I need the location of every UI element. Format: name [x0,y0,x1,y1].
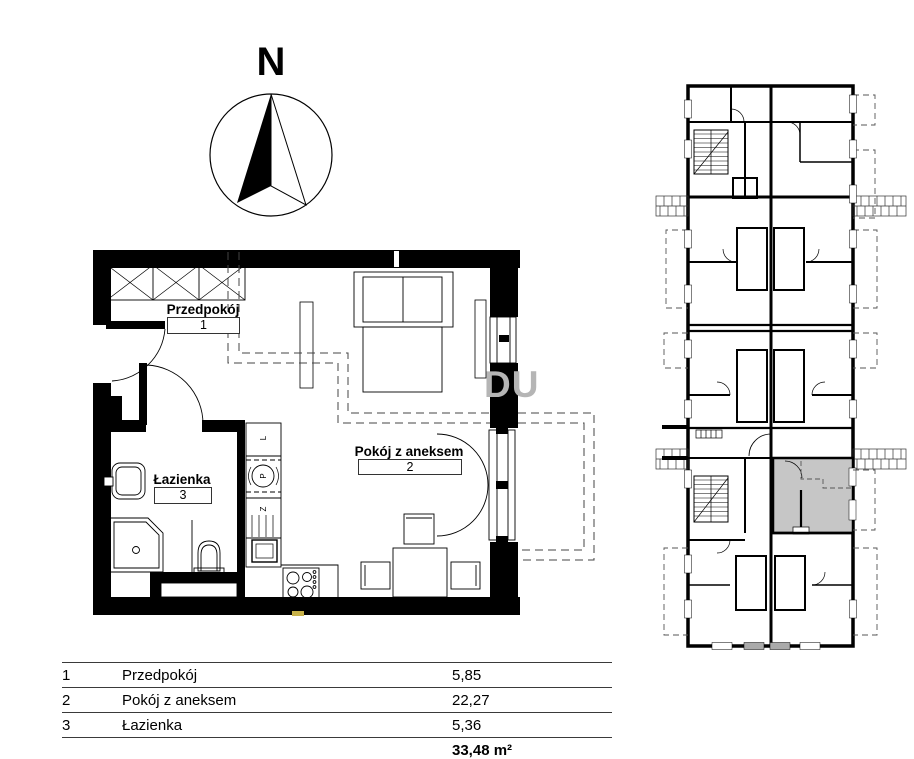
north-label: N [257,40,286,85]
row-area: 5,85 [452,663,612,688]
row-name: Pokój z aneksem [122,688,452,713]
tap [104,477,113,486]
row-no: 2 [62,688,122,713]
highlighted-unit [773,458,856,534]
building-overview [656,86,906,650]
dishwasher-letter: Z [255,501,271,517]
row-no: 3 [62,713,122,738]
wardrobe [107,265,245,300]
watermark-text: DU [484,364,539,406]
fridge-letter: L [255,430,271,446]
plan-linework [0,0,914,759]
tall-cabinet [300,302,313,388]
washer-letter: P [255,468,271,484]
area-table-total-row: 33,48 m² [62,738,612,759]
area-table-row: 3 Łazienka 5,36 [62,713,612,738]
row-area: 5,36 [452,713,612,738]
room-label-pokoj-z-aneksem: Pokój z aneksem [355,444,464,459]
room-label-lazienka: Łazienka [153,472,210,487]
row-name: Przedpokój [122,663,452,688]
balcony-outline [518,413,594,560]
stairwell-upper [694,130,728,174]
washbasin [112,463,145,499]
area-table-row: 2 Pokój z aneksem 22,27 [62,688,612,713]
room-number-pokoj-z-aneksem: 2 [358,459,462,475]
room-number-przedpokoj: 1 [167,317,240,334]
room-number-lazienka: 3 [154,487,212,504]
compass-rose [210,94,332,216]
room-label-przedpokoj: Przedpokój [167,302,240,317]
utility-marker [292,611,304,616]
area-table: 1 Przedpokój 5,85 2 Pokój z aneksem 22,2… [62,662,612,759]
shower [110,518,163,572]
row-name: Łazienka [122,713,452,738]
stairwell-lower [694,476,728,522]
dining-set [361,514,480,597]
total-area: 33,48 m² [452,738,612,759]
row-area: 22,27 [452,688,612,713]
bed [354,272,453,392]
walls [93,250,520,615]
kitchen-annex-dashed-boundary [228,252,490,423]
area-table-row: 1 Przedpokój 5,85 [62,663,612,688]
row-no: 1 [62,663,122,688]
floor-plan-page: N Przedpokój 1 Pokój z aneksem 2 Łazienk… [0,0,914,759]
